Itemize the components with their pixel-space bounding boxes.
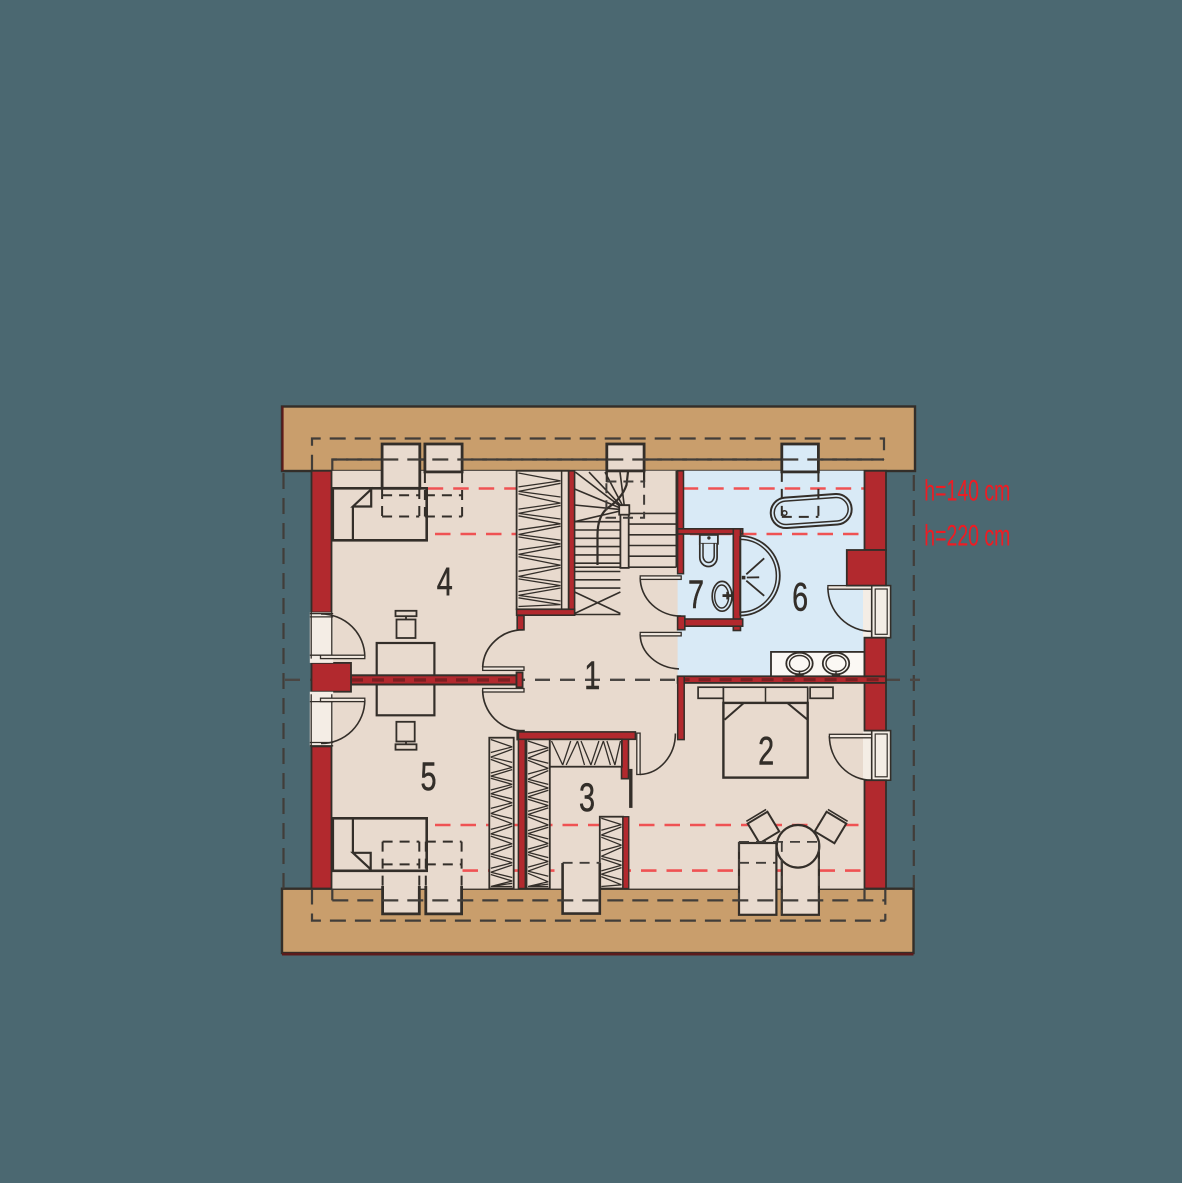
svg-text:6: 6 <box>792 575 808 620</box>
svg-text:h=220 cm: h=220 cm <box>924 520 1010 553</box>
svg-text:2: 2 <box>758 729 774 774</box>
svg-text:4: 4 <box>437 559 453 604</box>
svg-text:1: 1 <box>584 653 600 698</box>
svg-text:h=140 cm: h=140 cm <box>924 475 1010 508</box>
svg-text:3: 3 <box>579 775 595 820</box>
svg-text:7: 7 <box>688 572 704 617</box>
svg-text:5: 5 <box>420 754 436 799</box>
